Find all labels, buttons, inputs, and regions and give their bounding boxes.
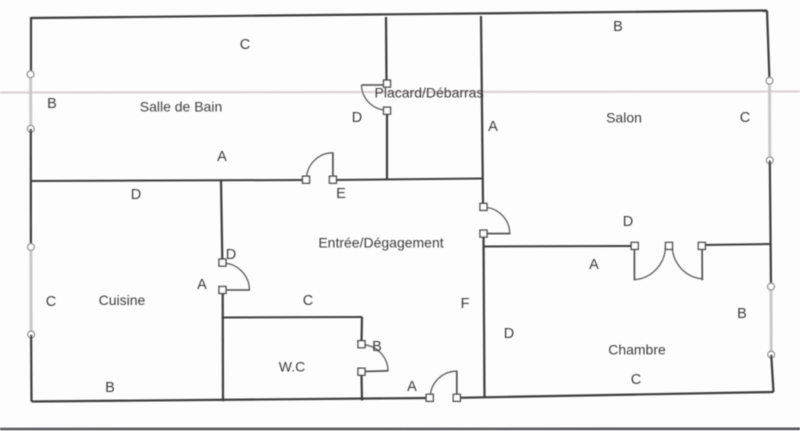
svg-text:A: A xyxy=(589,257,599,273)
svg-text:Salle de Bain: Salle de Bain xyxy=(140,99,223,115)
svg-text:D: D xyxy=(623,214,633,230)
svg-text:W.C: W.C xyxy=(279,359,305,375)
svg-text:A: A xyxy=(488,119,498,135)
svg-text:A: A xyxy=(217,149,227,165)
svg-text:D: D xyxy=(131,187,141,203)
svg-text:A: A xyxy=(197,277,207,293)
svg-text:B: B xyxy=(47,96,57,112)
svg-text:B: B xyxy=(737,306,747,322)
svg-text:B: B xyxy=(105,380,115,396)
svg-text:C: C xyxy=(240,37,250,53)
svg-text:Entrée/Dégagement: Entrée/Dégagement xyxy=(318,235,443,251)
svg-text:B: B xyxy=(613,19,623,35)
svg-text:C: C xyxy=(631,372,641,388)
svg-text:C: C xyxy=(303,293,313,309)
svg-text:C: C xyxy=(740,110,750,126)
svg-text:C: C xyxy=(46,294,56,310)
svg-text:Salon: Salon xyxy=(606,110,642,126)
svg-text:A: A xyxy=(407,379,417,395)
svg-text:B: B xyxy=(372,339,382,355)
svg-text:E: E xyxy=(336,186,346,202)
svg-text:D: D xyxy=(226,247,236,263)
svg-text:Placard/Débarras: Placard/Débarras xyxy=(375,85,484,101)
svg-text:D: D xyxy=(504,326,514,342)
svg-text:Cuisine: Cuisine xyxy=(99,292,146,308)
svg-text:Chambre: Chambre xyxy=(608,342,666,358)
svg-text:F: F xyxy=(461,296,470,312)
svg-text:D: D xyxy=(352,110,362,126)
